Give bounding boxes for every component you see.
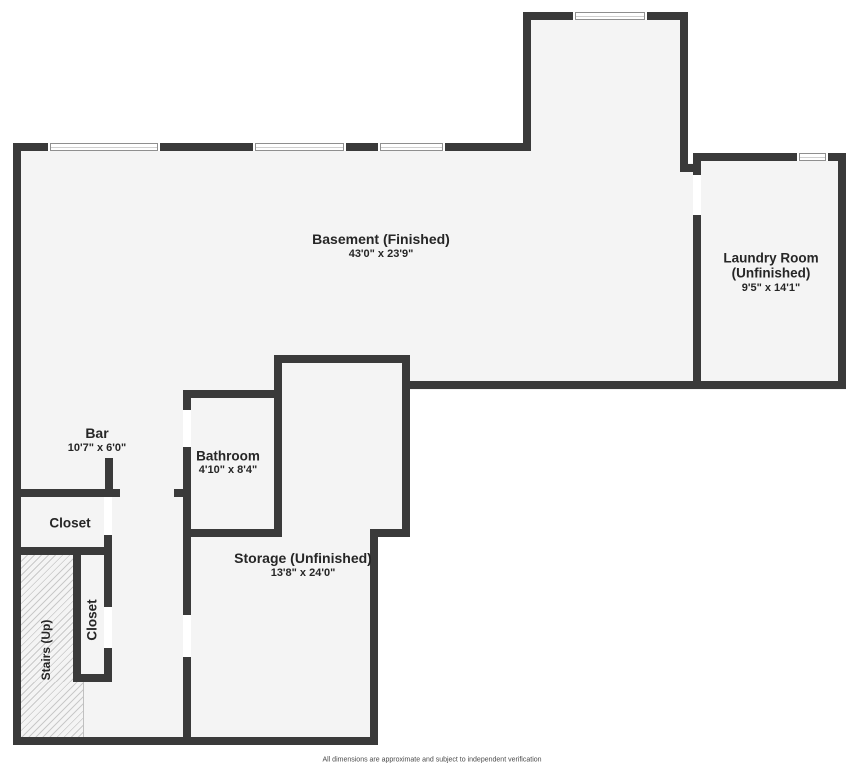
- wall-bathroom-bottom: [183, 529, 282, 537]
- wall-storage-right-upper: [402, 355, 410, 537]
- wall-protrusion-top-1: [523, 12, 573, 20]
- wall-laundry-right: [838, 153, 846, 389]
- room-dims-basement: 43'0" x 23'9": [349, 248, 414, 260]
- room-label-laundry-2: (Unfinished): [732, 266, 811, 281]
- window: [378, 143, 445, 151]
- door-laundry: [693, 175, 701, 215]
- wall-laundry-top-1: [693, 153, 797, 161]
- wall-bathroom-left-upper: [183, 390, 191, 410]
- floor-protrusion: [523, 12, 688, 151]
- wall-top-2: [160, 143, 253, 151]
- window: [797, 153, 828, 161]
- wall-outer-left: [13, 143, 21, 745]
- room-label-bathroom: Bathroom: [196, 449, 260, 464]
- wall-bottom-right: [402, 381, 846, 389]
- wall-bathroom-top: [183, 390, 282, 398]
- wall-closet-lower-right-upper: [104, 552, 112, 607]
- wall-protrusion-right: [680, 12, 688, 172]
- wall-top-3: [346, 143, 378, 151]
- wall-closet-lower-left: [73, 552, 81, 682]
- wall-bar-stub: [105, 458, 113, 490]
- room-dims-laundry: 9'5" x 14'1": [742, 282, 800, 294]
- wall-bathroom-right: [274, 355, 282, 537]
- wall-closet-lower-bottom: [73, 674, 112, 682]
- floor-plan: Basement (Finished) 43'0" x 23'9" Laundr…: [0, 0, 864, 768]
- floor-basement: [13, 143, 688, 390]
- room-label-stairs: Stairs (Up): [39, 620, 53, 681]
- room-label-closet-lower: Closet: [85, 599, 100, 640]
- wall-bottom-left: [13, 737, 378, 745]
- room-dims-bar: 10'7" x 6'0": [68, 442, 126, 454]
- stairs-hatch-lower: [21, 682, 84, 737]
- window: [573, 12, 647, 20]
- wall-laundry-left-upper: [693, 153, 701, 175]
- room-dims-storage: 13'8" x 24'0": [271, 567, 336, 579]
- room-label-storage: Storage (Unfinished): [234, 550, 372, 566]
- wall-protrusion-left: [523, 12, 531, 151]
- room-label-closet-upper: Closet: [49, 516, 90, 531]
- wall-top-1: [13, 143, 48, 151]
- room-dims-bathroom: 4'10" x 8'4": [199, 464, 257, 476]
- door-storage: [183, 615, 191, 657]
- room-label-laundry: Laundry Room: [723, 251, 818, 266]
- wall-closet-upper-bottom: [13, 547, 112, 555]
- door-closet-lower: [104, 607, 112, 648]
- wall-door-nub: [174, 489, 191, 497]
- disclaimer-text: All dimensions are approximate and subje…: [322, 757, 541, 764]
- wall-bar: [13, 489, 120, 497]
- wall-storage-left-upper: [183, 537, 191, 615]
- door-bathroom: [183, 410, 191, 447]
- window: [253, 143, 346, 151]
- wall-laundry-left-lower: [693, 215, 701, 389]
- window: [48, 143, 160, 151]
- door-closet-upper: [104, 497, 112, 535]
- wall-storage-top: [274, 355, 410, 363]
- wall-top-4: [445, 143, 531, 151]
- wall-storage-left-lower: [183, 657, 191, 745]
- room-label-basement: Basement (Finished): [312, 231, 450, 247]
- room-label-bar: Bar: [85, 425, 108, 441]
